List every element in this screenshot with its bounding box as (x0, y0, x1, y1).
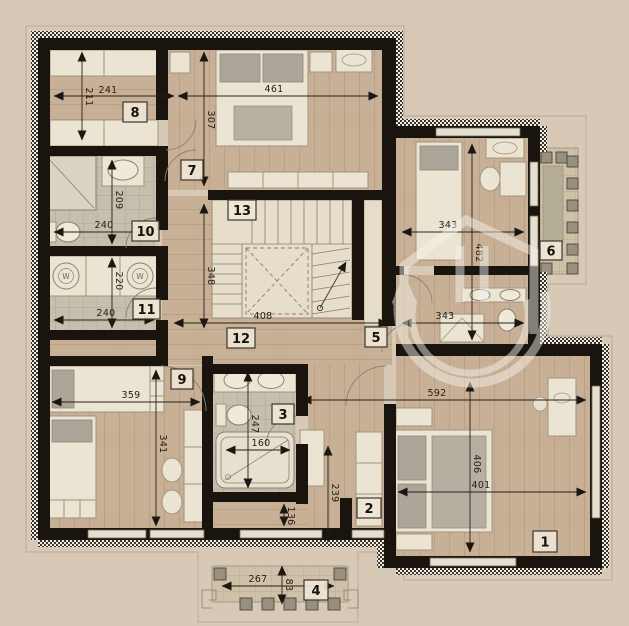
chair (480, 167, 500, 191)
room-label-8: 8 (123, 102, 147, 122)
shaft (364, 200, 382, 326)
sink (108, 160, 138, 180)
window (436, 128, 520, 136)
dim-241: 241 (98, 85, 117, 96)
room-label-11: 11 (133, 299, 160, 319)
nightstand (396, 408, 432, 426)
room-label-12: 12 (227, 328, 255, 348)
svg-text:12: 12 (232, 332, 250, 347)
svg-text:7: 7 (187, 164, 196, 179)
pillow (398, 484, 426, 528)
sink (258, 372, 284, 389)
svg-text:10: 10 (136, 225, 154, 240)
balcony-door (240, 530, 322, 538)
desk (184, 410, 204, 522)
svg-text:11: 11 (137, 303, 155, 318)
nightstand (170, 52, 190, 73)
dim-220: 220 (113, 271, 124, 290)
dim-211: 211 (83, 87, 94, 106)
toilet (498, 309, 516, 331)
svg-text:4: 4 (311, 584, 320, 599)
dim-247: 247 (249, 414, 260, 433)
svg-text:1: 1 (540, 536, 549, 551)
dim-343b: 343 (435, 311, 454, 322)
svg-text:6: 6 (546, 245, 555, 260)
dim-240a: 240 (94, 220, 113, 231)
pillow (220, 54, 260, 82)
throw-blanket (234, 106, 292, 140)
room-label-7: 7 (181, 160, 203, 180)
dresser (486, 138, 524, 158)
chair (162, 458, 182, 482)
dim-401: 401 (471, 480, 490, 491)
room-label-5: 5 (365, 327, 387, 347)
nightstand (396, 534, 432, 550)
floor-plan: W W (0, 0, 629, 626)
dim-461: 461 (264, 84, 283, 95)
dim-408: 408 (253, 311, 272, 322)
pillow (52, 420, 92, 442)
dim-136: 136 (285, 506, 296, 525)
room-label-4: 4 (304, 580, 328, 600)
washer-label: W (136, 272, 144, 281)
window (430, 558, 516, 566)
nightstand (310, 52, 332, 72)
svg-text:9: 9 (177, 373, 186, 388)
room-label-2: 2 (357, 498, 381, 518)
stool (533, 397, 547, 411)
dresser (548, 378, 576, 436)
pillow (263, 54, 303, 82)
svg-text:3: 3 (278, 408, 287, 423)
window (150, 530, 204, 538)
svg-text:8: 8 (130, 106, 139, 121)
washer-label: W (62, 272, 70, 281)
chair (162, 490, 182, 514)
pillow (420, 146, 458, 170)
window (592, 386, 600, 518)
window (88, 530, 146, 538)
dim-83: 83 (283, 579, 294, 592)
sink (224, 372, 250, 389)
window (352, 530, 384, 538)
dim-592: 592 (427, 388, 446, 399)
dim-239: 239 (329, 483, 340, 502)
room-label-6: 6 (540, 241, 562, 260)
dim-209: 209 (113, 190, 124, 209)
balcony-door (530, 162, 538, 206)
room-label-9: 9 (171, 369, 193, 389)
dim-160: 160 (251, 438, 270, 449)
room-label-13: 13 (228, 200, 256, 220)
dim-341: 341 (157, 434, 168, 453)
desk (500, 162, 526, 196)
room-label-10: 10 (132, 221, 159, 241)
dim-359: 359 (121, 390, 140, 401)
toilet-tank (216, 404, 226, 426)
room-label-1: 1 (533, 531, 557, 552)
dim-406: 406 (471, 454, 482, 473)
toilet (227, 405, 251, 425)
dresser (336, 48, 372, 72)
dim-307: 307 (205, 110, 216, 129)
dim-240b: 240 (96, 308, 115, 319)
laundry-11-fixtures: W W (46, 256, 160, 296)
dim-348: 348 (205, 266, 216, 285)
svg-text:5: 5 (371, 331, 380, 346)
room-label-3: 3 (272, 404, 294, 424)
svg-text:2: 2 (364, 502, 373, 517)
floor-plan-page: W W (0, 0, 629, 626)
svg-text:13: 13 (233, 204, 251, 219)
pillow (398, 436, 426, 480)
dim-267: 267 (248, 574, 267, 585)
sink (500, 290, 520, 301)
